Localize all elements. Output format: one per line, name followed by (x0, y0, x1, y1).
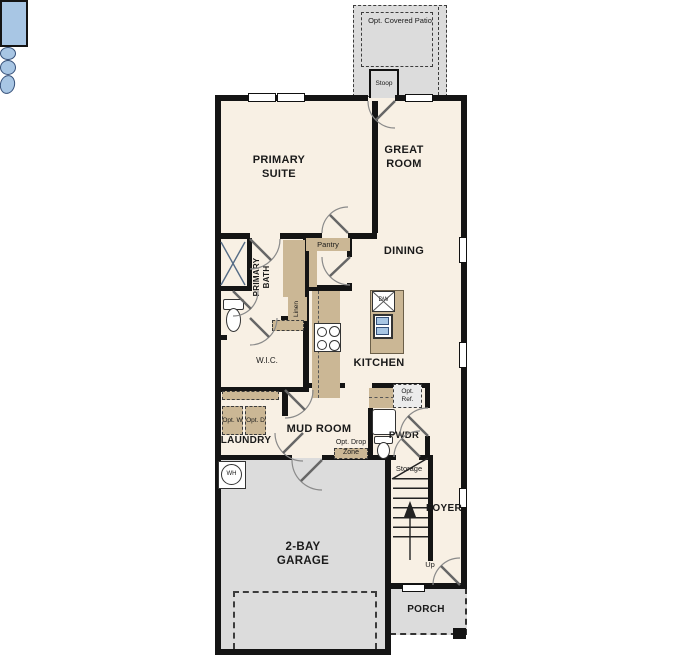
room-label-laundry: LAUNDRY (220, 435, 272, 448)
wall-segment (215, 233, 250, 239)
laundry-shelf (222, 391, 279, 400)
toilet-icon (226, 308, 241, 332)
sink-icon (0, 60, 16, 75)
burner (329, 326, 340, 337)
opt-washer-label: Opt. W (222, 408, 243, 433)
sink-basin (376, 317, 389, 325)
window (402, 584, 425, 592)
patio-label: Opt. Covered Patio (355, 15, 445, 26)
wall-segment (425, 383, 430, 408)
room-label-pantry: Pantry (306, 239, 350, 250)
room-label-porch: PORCH (400, 604, 452, 617)
range-icon (314, 323, 341, 352)
window (248, 93, 276, 102)
label-up: Up (420, 559, 440, 570)
wall-segment (215, 455, 292, 460)
wic-shelf (272, 320, 304, 331)
window (405, 94, 433, 102)
counter-dash-line (369, 397, 394, 399)
burner (329, 340, 340, 351)
wall-segment (419, 455, 428, 460)
shower (0, 0, 28, 47)
opt-ref-label: Opt. Ref. (395, 385, 420, 407)
room-label-great-room: GREAT ROOM (378, 142, 430, 174)
room-label-garage: 2-BAY GARAGE (272, 538, 334, 570)
window (459, 237, 467, 263)
vanity-counter (283, 240, 305, 297)
floor-plan: Opt. Covered Patio Stoop (0, 0, 687, 661)
wall-segment (348, 233, 377, 239)
garage-door-outline (233, 591, 377, 649)
wall-segment (215, 335, 227, 340)
pantry-shelf-side (309, 251, 317, 287)
room-label-foyer: FOYER (423, 503, 465, 516)
room-label-linen: Linen (292, 297, 302, 321)
sink-basin (376, 327, 389, 335)
label-drop-zone: Opt. Drop Zone (328, 437, 374, 458)
wall-segment (215, 95, 221, 655)
window (459, 342, 467, 368)
label-storage: Storage (392, 463, 426, 474)
opt-dryer-label: Opt. D (245, 408, 266, 433)
sink-icon (0, 73, 17, 95)
toilet-icon (377, 442, 390, 459)
sink-icon (0, 47, 16, 60)
room-label-dining: DINING (380, 245, 428, 258)
porch-post (453, 628, 466, 639)
kitchen-counter-lower (369, 388, 394, 408)
room-label-kitchen: KITCHEN (350, 357, 408, 371)
water-heater-label: WH (221, 464, 242, 485)
burner (317, 327, 327, 337)
wall-segment (282, 388, 288, 416)
window (277, 93, 305, 102)
room-label-mud-room: MUD ROOM (283, 423, 355, 437)
room-label-primary-suite: PRIMARY SUITE (245, 152, 313, 184)
room-label-wic: W.I.C. (247, 355, 287, 366)
wall-segment (385, 460, 391, 655)
stoop-label: Stoop (369, 79, 399, 89)
burner (317, 340, 327, 350)
island-sink (373, 314, 393, 339)
room-label-primary-bath: PRIMARY BATH (251, 254, 273, 300)
wall-segment (215, 286, 252, 291)
room-label-pwdr: PWDR (382, 429, 426, 442)
wall-segment (215, 649, 390, 655)
dishwasher-label: DW (372, 296, 395, 306)
